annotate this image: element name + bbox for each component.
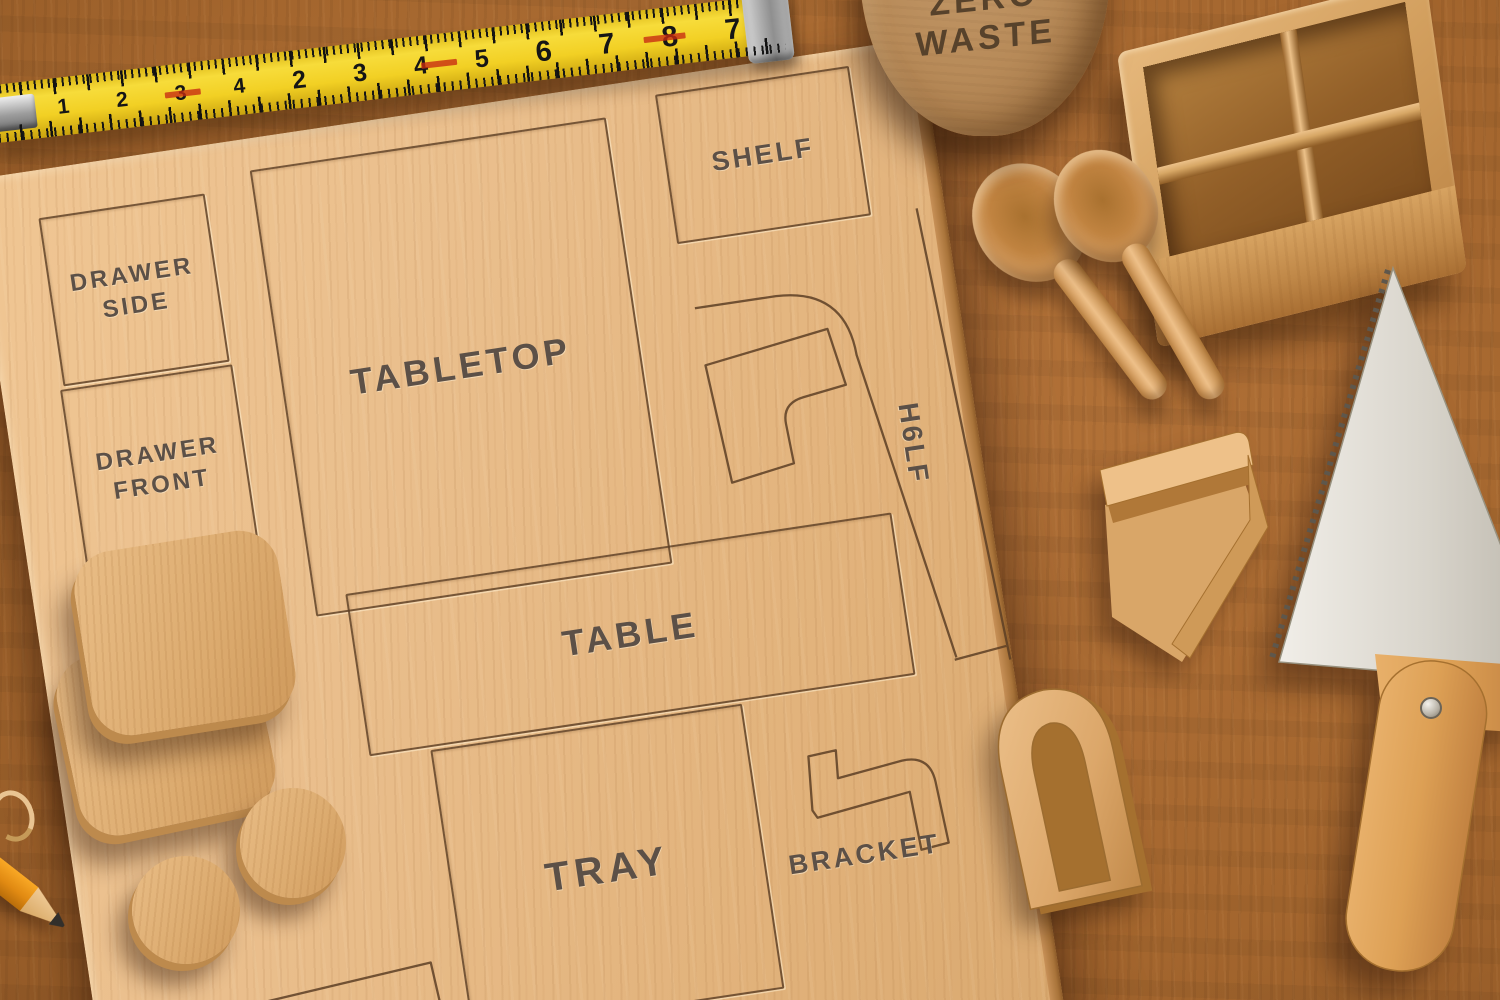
hand-saw xyxy=(1225,262,1500,997)
tray-label: TRAY xyxy=(542,834,674,904)
coaster-square-top xyxy=(69,525,302,741)
cut-region-shelf: SHELF xyxy=(655,66,871,244)
saw-blade xyxy=(1279,268,1500,684)
cut-region-tabletop: TABLETOP xyxy=(250,117,673,616)
tape-end-clip xyxy=(740,0,795,64)
workbench-scene: DRAWER SIDE DRAWER FRONT TABLETOP SHELF … xyxy=(0,0,1500,1000)
coaster-round-left xyxy=(132,856,240,964)
tape-number: 2 xyxy=(115,88,129,113)
tape-hook-end xyxy=(0,94,38,134)
tape-number: 6 xyxy=(534,34,554,69)
tape-number: 7 xyxy=(723,12,743,47)
arch-workpiece xyxy=(968,660,1164,916)
saw-rivet xyxy=(1421,698,1441,718)
coaster-round-right xyxy=(240,788,346,898)
shelf-label: SHELF xyxy=(709,130,817,180)
drawer-side-label: DRAWER SIDE xyxy=(54,248,214,332)
tape-number: 2 xyxy=(291,65,308,95)
saw-handle xyxy=(1339,653,1494,978)
tape-number: 4 xyxy=(232,74,246,99)
mug-slogan: ZERO WASTE xyxy=(859,0,1110,71)
notched-cut-outline xyxy=(703,327,858,484)
partial-cut-outline xyxy=(245,959,494,1000)
table-label: TABLE xyxy=(559,601,702,668)
tape-number: 5 xyxy=(473,44,490,74)
tape-number: 3 xyxy=(351,58,368,88)
plywood-board: DRAWER SIDE DRAWER FRONT TABLETOP SHELF … xyxy=(0,38,1085,1000)
half-lane-bottom-line xyxy=(954,646,1007,660)
cut-region-drawer-side: DRAWER SIDE xyxy=(38,193,229,386)
tabletop-label: TABLETOP xyxy=(347,327,574,406)
drawer-front-label: DRAWER FRONT xyxy=(80,427,240,511)
cut-region-tray: TRAY xyxy=(430,704,784,1000)
tape-number: 7 xyxy=(597,27,617,62)
tape-number: 1 xyxy=(56,95,70,120)
